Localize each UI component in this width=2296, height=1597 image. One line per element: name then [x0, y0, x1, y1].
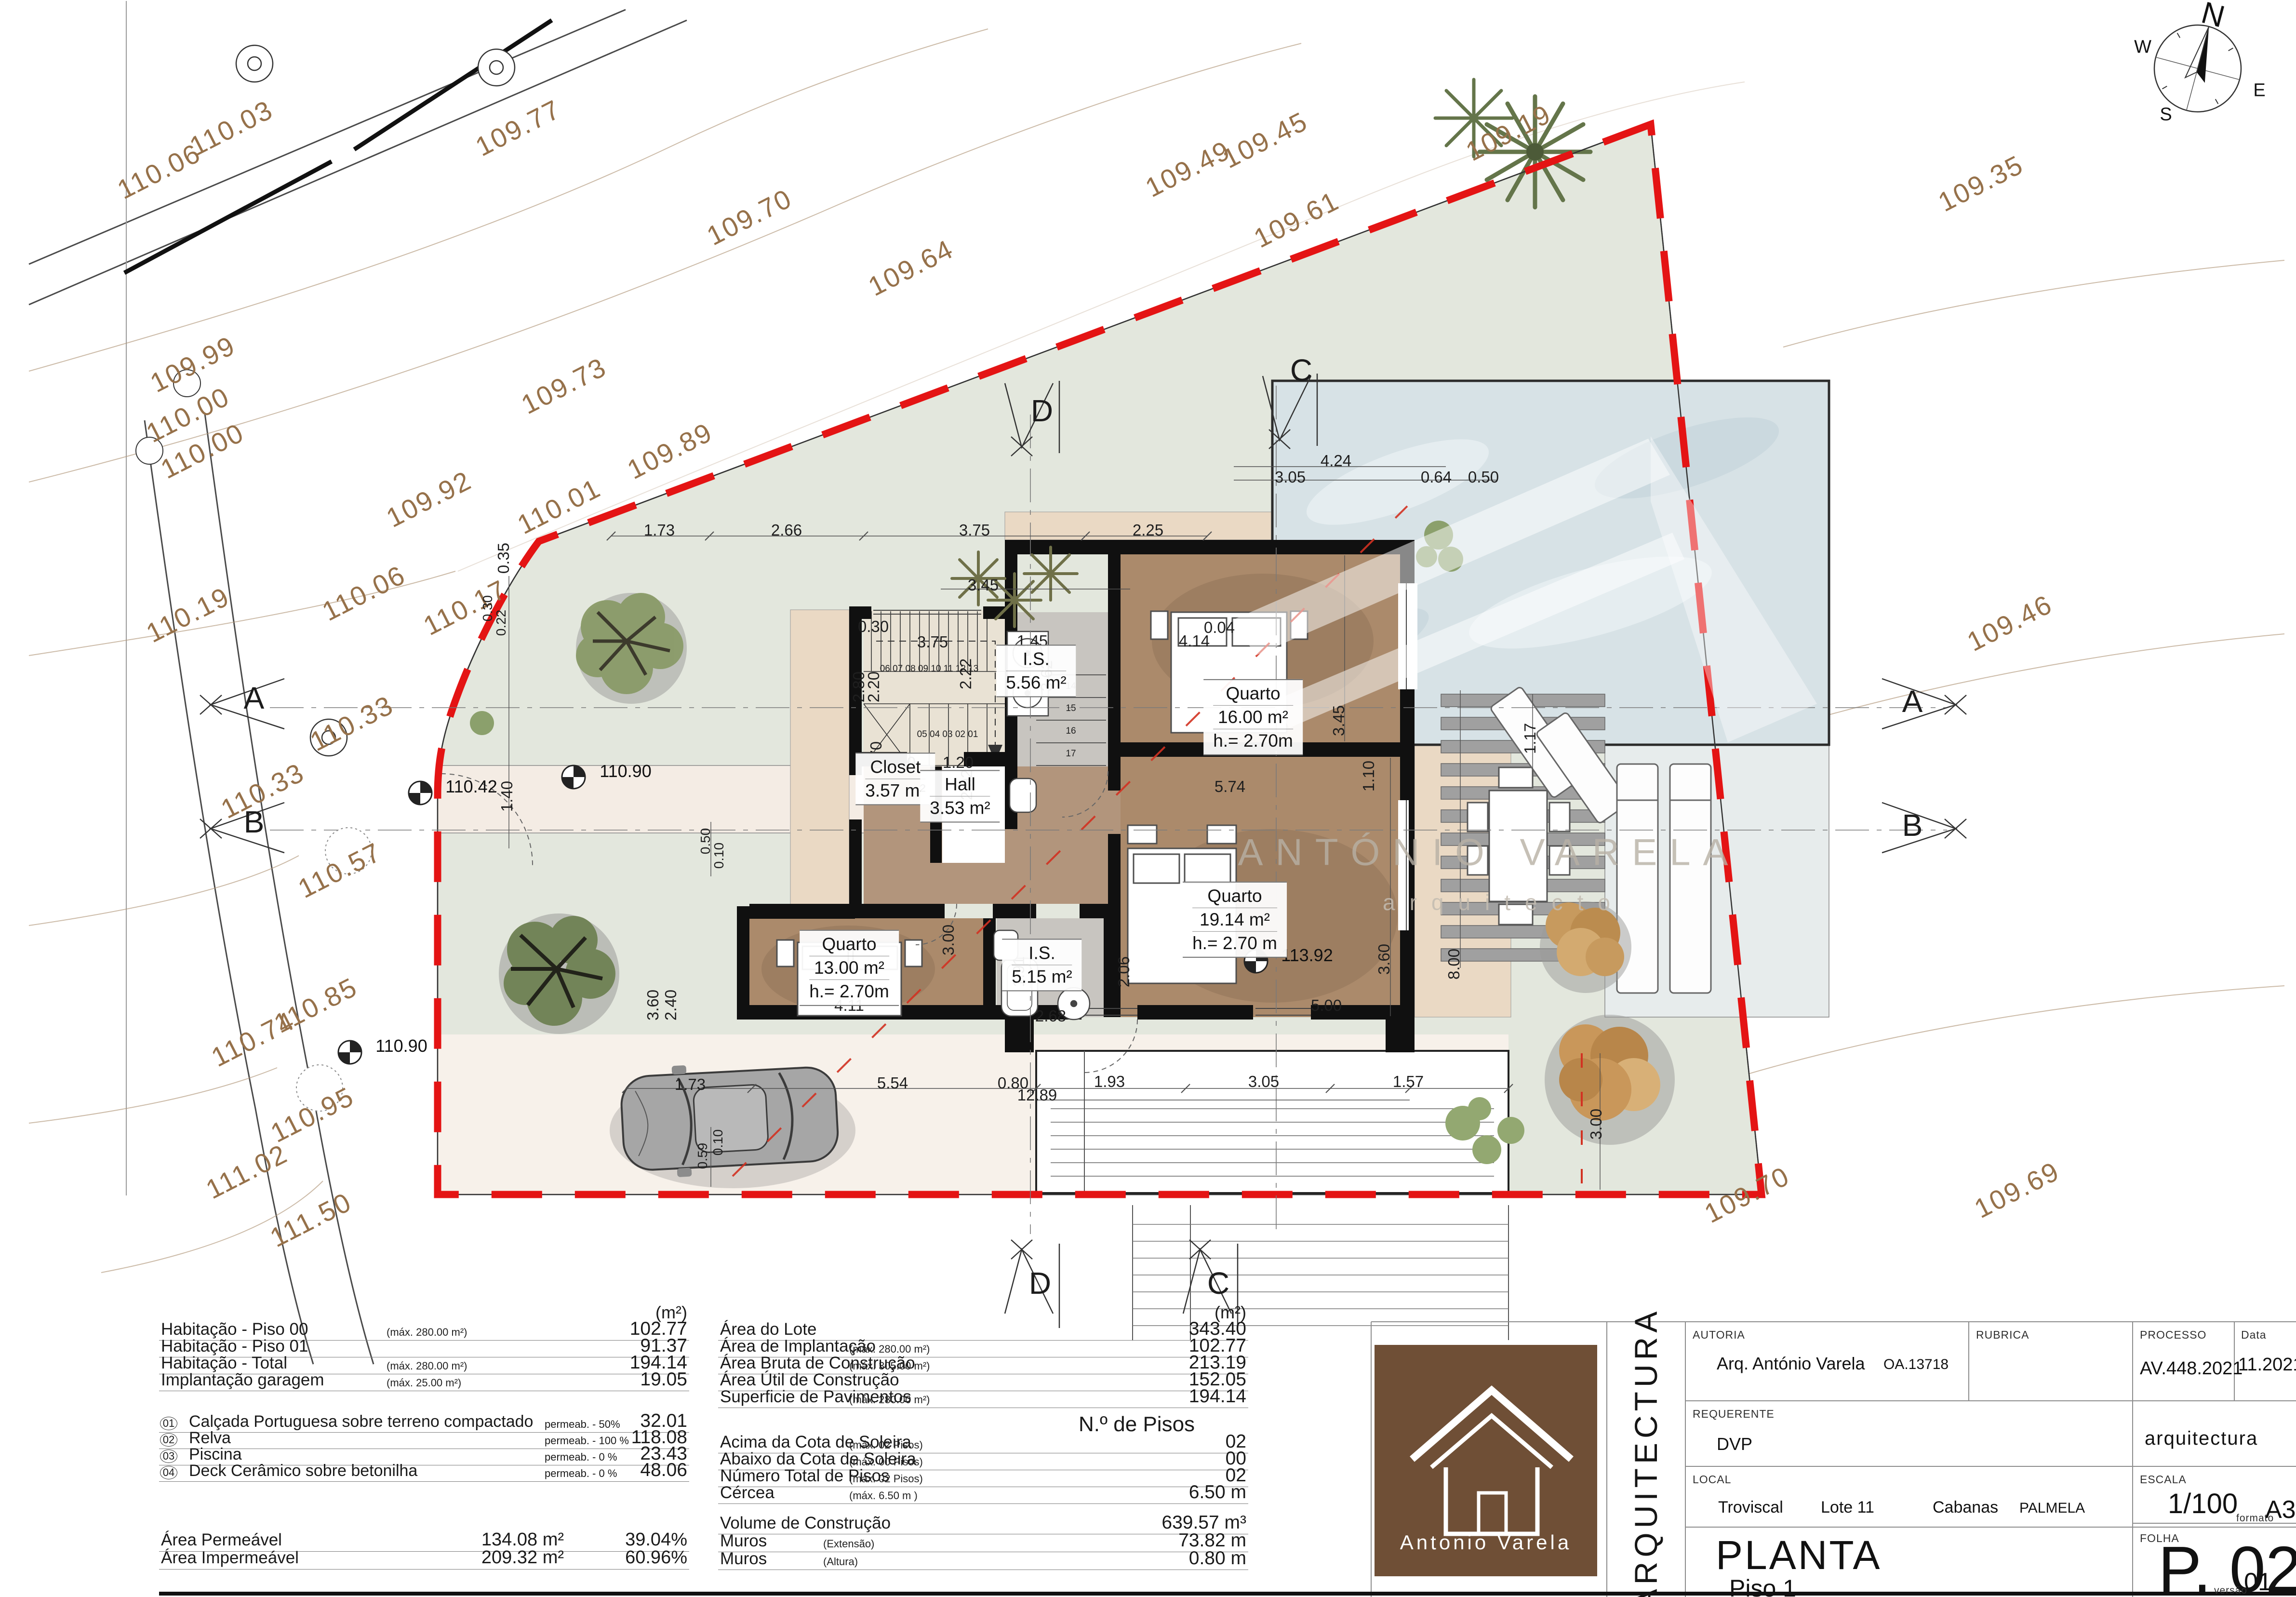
- table-lote: (m²) Área do Lote 343.40 Área de Implant…: [718, 1307, 1248, 1408]
- compass-rose: [2145, 15, 2251, 121]
- table-row: Volume de Construção 639.57 m³: [718, 1516, 1248, 1534]
- table-row: Muros (Extensão) 73.82 m: [718, 1534, 1248, 1552]
- garage: [1036, 1051, 1508, 1193]
- pisos-header: N.º de Pisos: [1079, 1412, 1195, 1436]
- table-pisos: Acima da Cota de Soleira (máx. 02 Pisos)…: [718, 1436, 1248, 1504]
- table-row: Número Total de Pisos (máx. 02 Pisos) 02: [718, 1470, 1248, 1487]
- table-row: Área Impermeável 209.32 m² 60.96%: [159, 1552, 689, 1570]
- table-row: 04 Deck Cerâmico sobre betonilha permeab…: [159, 1465, 689, 1482]
- table-volume: Volume de Construção 639.57 m³ Muros (Ex…: [718, 1516, 1248, 1570]
- table-row: Cércea (máx. 6.50 m ) 6.50 m: [718, 1487, 1248, 1504]
- table-row: Superficie de Pavimentos (máx. 280.00 m²…: [718, 1391, 1248, 1408]
- car: [610, 1058, 855, 1188]
- drawing-sheet: 110.03110.06109.77109.70109.64109.73109.…: [0, 0, 2296, 1597]
- logo-tile: [1375, 1345, 1597, 1576]
- table-row: Implantação garagem (máx. 25.00 m²) 19.0…: [159, 1374, 689, 1391]
- table-row: 01 Calçada Portuguesa sobre terreno comp…: [159, 1416, 689, 1433]
- table-row: Muros (Altura) 0.80 m: [718, 1552, 1248, 1570]
- table-habitacao: (m²) Habitação - Piso 00 (máx. 280.00 m²…: [159, 1307, 689, 1391]
- table-areas: Área Permeável 134.08 m² 39.04% Área Imp…: [159, 1534, 689, 1570]
- table-surfaces: 01 Calçada Portuguesa sobre terreno comp…: [159, 1416, 689, 1482]
